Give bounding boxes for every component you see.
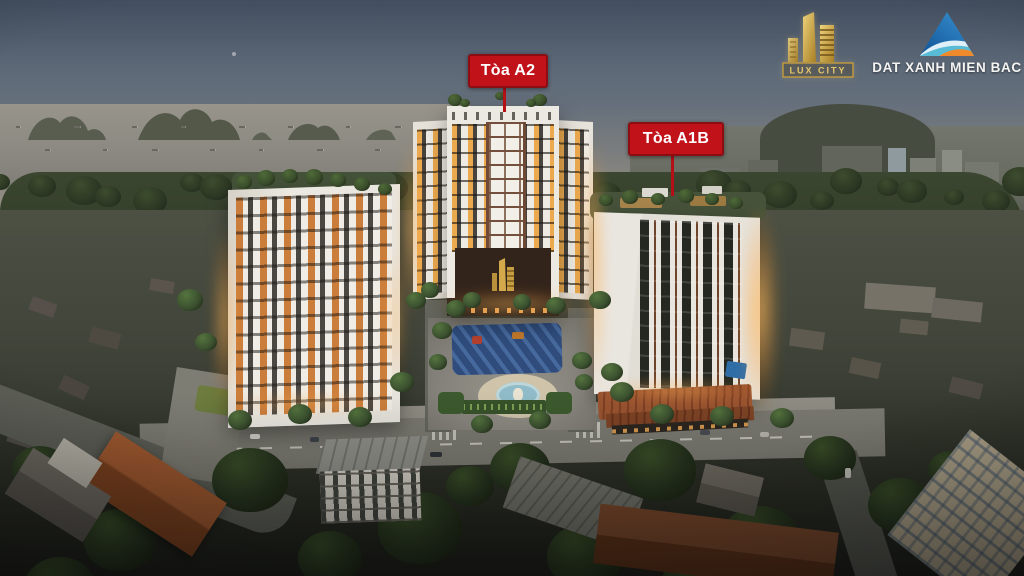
treeline-tree <box>897 179 927 203</box>
tree <box>305 169 323 184</box>
karst-islands <box>0 96 470 142</box>
tree <box>236 175 252 189</box>
tree <box>678 189 694 203</box>
tree <box>390 372 414 392</box>
tree <box>624 439 696 500</box>
tree <box>650 404 674 424</box>
mid-house <box>899 319 928 336</box>
tree <box>575 374 593 389</box>
boat <box>74 126 80 128</box>
boat <box>210 149 215 151</box>
render-canvas: Tòa A2 Tòa A1B LUX CITY <box>0 0 1024 576</box>
car <box>845 468 851 478</box>
apartment-facade <box>320 468 422 523</box>
boat <box>239 126 245 128</box>
car <box>760 432 769 437</box>
small-pool <box>725 361 747 380</box>
boat <box>346 126 350 128</box>
treeline-tree <box>28 175 56 197</box>
lux-city-logo-text: LUX CITY <box>789 66 846 76</box>
tower-a2-wing-left <box>413 120 451 300</box>
tree <box>622 190 638 204</box>
tower-a2-pointer-line <box>503 84 506 112</box>
treeline-tree <box>810 191 834 210</box>
boat <box>317 149 323 151</box>
tree <box>729 197 743 209</box>
tree <box>572 352 592 369</box>
treeline-tree <box>877 178 899 196</box>
tree <box>257 170 275 185</box>
tree <box>770 408 794 428</box>
boat <box>152 149 158 151</box>
tree <box>195 333 217 352</box>
tower-left-windows <box>236 192 392 415</box>
treeline-tree <box>95 186 121 207</box>
tree <box>526 99 536 108</box>
tower-a1b-pointer-line <box>671 152 674 196</box>
boat <box>259 149 263 151</box>
hedge-block <box>546 392 572 414</box>
mid-house <box>864 283 936 314</box>
tree <box>513 294 531 309</box>
car <box>700 430 710 435</box>
tree <box>705 193 719 205</box>
tree <box>446 466 494 507</box>
tree <box>599 194 613 206</box>
tower-a2-wing-right-windows <box>559 128 589 294</box>
tree <box>348 407 372 427</box>
tree <box>610 382 634 402</box>
boat <box>288 126 293 128</box>
playground <box>451 323 562 376</box>
tower-a2-sign: Tòa A2 <box>468 54 548 88</box>
tree <box>354 177 370 191</box>
boat <box>375 149 380 151</box>
tree <box>471 415 493 434</box>
tree <box>710 406 734 426</box>
tree <box>378 183 392 195</box>
moon <box>232 52 236 56</box>
tower-a2-brick-band <box>486 122 526 252</box>
tower-a2-parapet-windows <box>452 112 554 120</box>
boat <box>181 126 185 128</box>
tower-left-body <box>228 184 400 428</box>
tower-a1b-sign-label: Tòa A1B <box>643 131 709 147</box>
tree <box>330 173 346 187</box>
play-equipment <box>472 336 482 344</box>
lux-city-logo: LUX CITY <box>781 8 855 80</box>
foreground-apartment <box>314 436 421 528</box>
treeline-tree <box>944 189 964 205</box>
car <box>430 452 442 457</box>
tree <box>429 354 447 369</box>
datxanh-logo-triangle <box>916 11 978 58</box>
tree <box>589 291 611 310</box>
boat <box>45 149 50 151</box>
tower-a2-flank-windows <box>452 124 488 252</box>
tower-a2-wing-left-windows <box>417 128 447 294</box>
play-equipment <box>512 332 524 339</box>
boat <box>16 126 20 128</box>
datxanh-logo-text: DAT XANH MIEN BAC <box>862 60 1024 75</box>
tree <box>432 322 452 339</box>
tree <box>288 404 312 424</box>
treeline-tree <box>763 181 797 208</box>
tower-a2-body <box>447 106 559 316</box>
hedge-block <box>438 392 464 414</box>
tree <box>651 193 665 205</box>
boat <box>103 149 107 151</box>
tree <box>177 289 203 311</box>
tree <box>460 99 470 108</box>
tree <box>546 297 566 314</box>
car <box>310 437 319 442</box>
tower-a2-wing-right <box>555 120 593 300</box>
tower-a1b-sign: Tòa A1B <box>628 122 724 156</box>
treeline-tree <box>830 168 862 194</box>
car <box>250 434 260 439</box>
tower-a2-sign-label: Tòa A2 <box>481 63 536 79</box>
boat <box>132 126 137 128</box>
podium-gold-emblem <box>490 257 516 295</box>
tree <box>463 292 481 307</box>
boat <box>395 126 401 128</box>
tree <box>228 410 252 430</box>
tree <box>282 169 298 183</box>
tree <box>601 363 623 382</box>
tree <box>529 411 551 430</box>
tree <box>421 282 439 297</box>
